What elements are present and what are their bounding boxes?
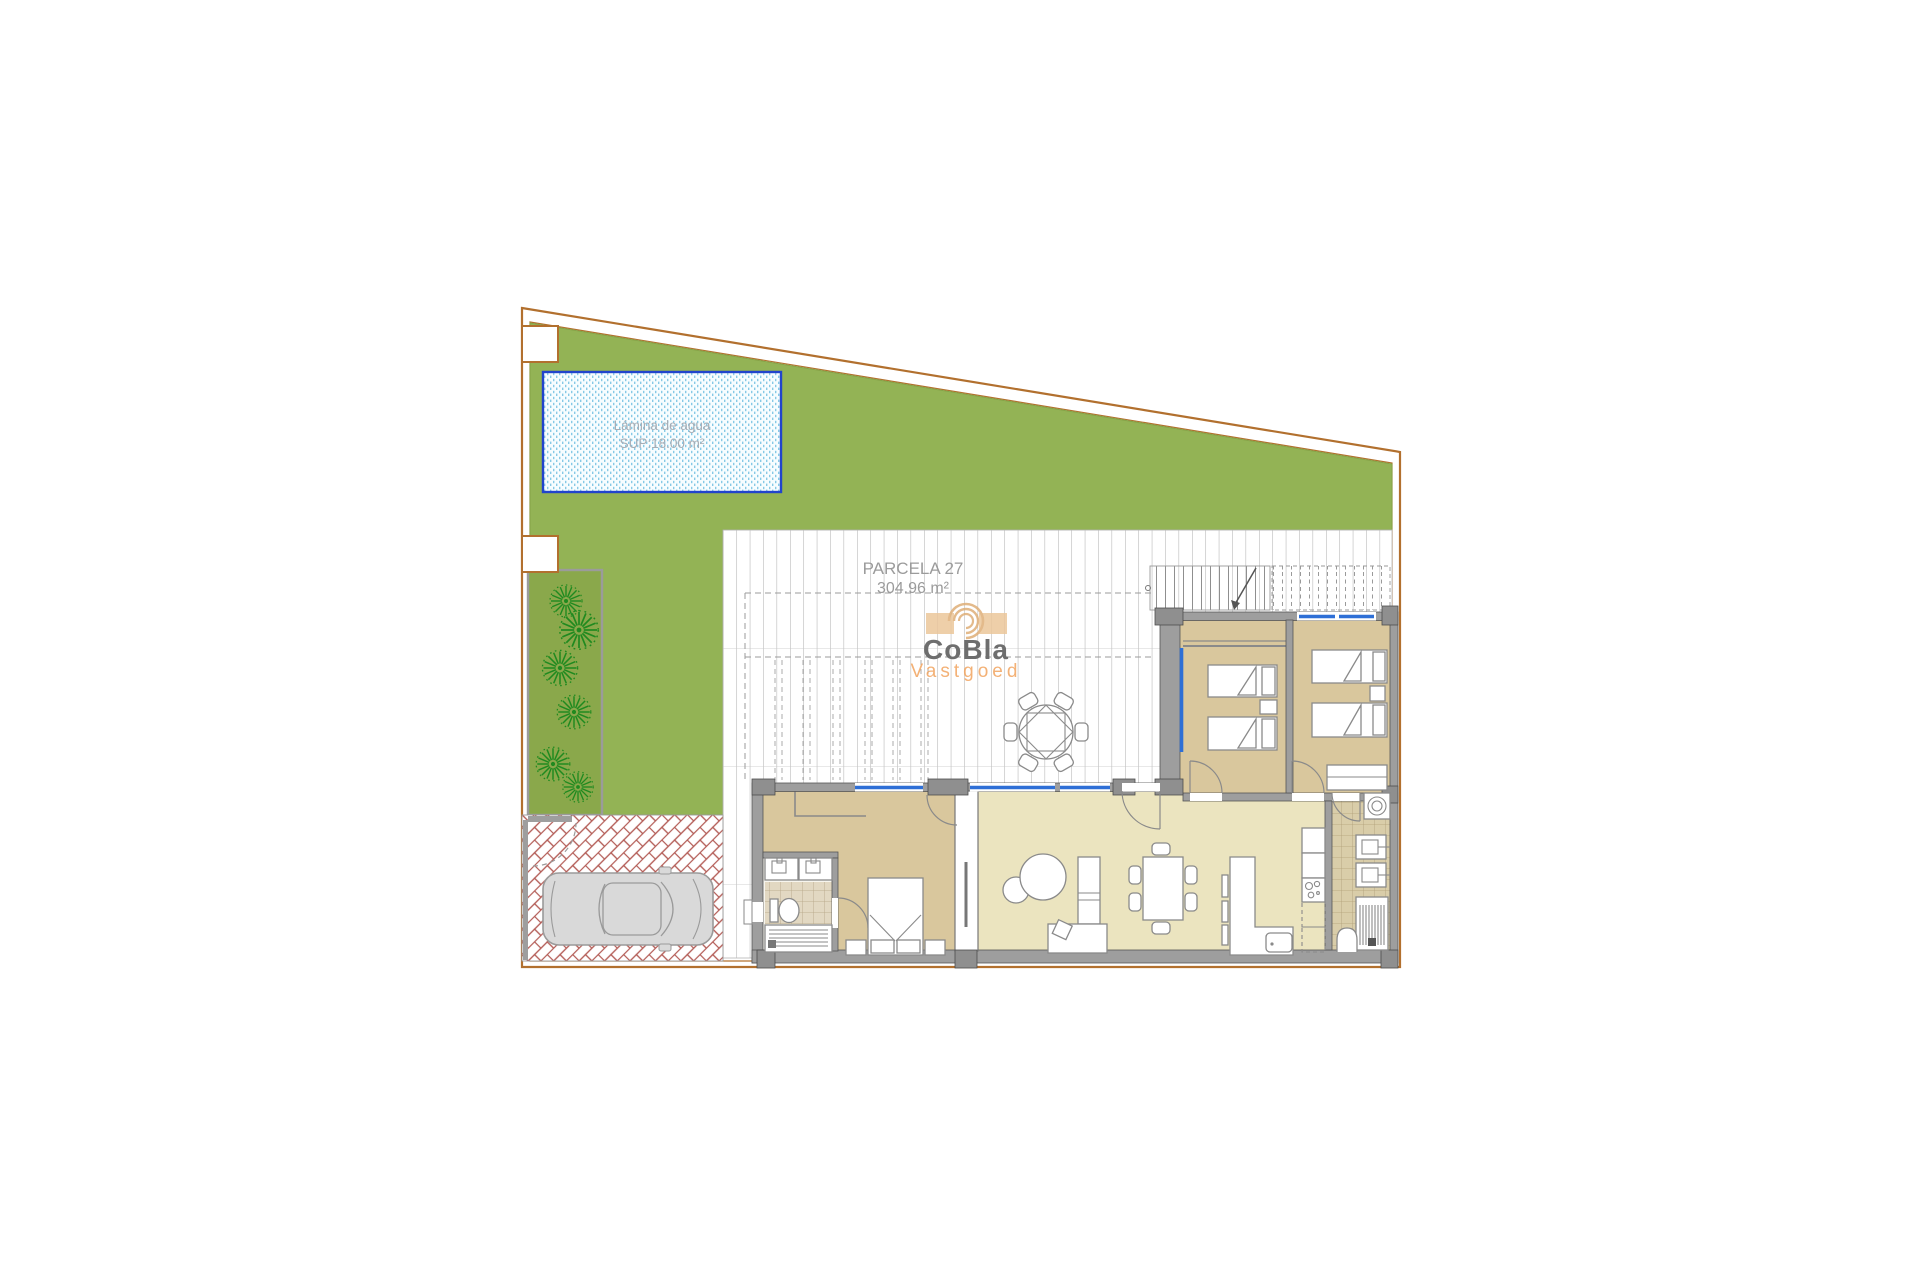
- chair: [1185, 866, 1197, 884]
- site-plan: Lámina de agua SUP:18.00 m² PARCELA 27 3…: [0, 0, 1920, 1280]
- side-mirror: [659, 867, 671, 874]
- chair: [1129, 893, 1141, 911]
- nightstand: [1370, 686, 1385, 701]
- wardrobe: [1327, 765, 1387, 790]
- pillow: [1373, 652, 1385, 681]
- dining-table: [1143, 857, 1183, 920]
- washing-machine: [1356, 897, 1388, 950]
- floor-plan-page: Lámina de agua SUP:18.00 m² PARCELA 27 3…: [0, 0, 1920, 1280]
- side-mirror: [659, 944, 671, 951]
- boundary-wall: [523, 820, 528, 960]
- logo-subtitle: Vastgoed: [911, 661, 1022, 682]
- external-staircase: [1146, 566, 1391, 610]
- shower: [765, 925, 832, 952]
- toilet: [1337, 928, 1357, 952]
- utility-meter-box: [522, 536, 558, 572]
- kitchen-sink: [1266, 933, 1292, 952]
- pillow: [1262, 667, 1275, 695]
- toilet: [770, 899, 799, 923]
- nightstand: [1260, 700, 1277, 714]
- pillow: [1262, 719, 1275, 748]
- utility-meter-box: [522, 326, 558, 362]
- chair: [1129, 866, 1141, 884]
- chair: [1185, 893, 1197, 911]
- hob: [1302, 878, 1325, 902]
- gate-wall-stub: [528, 816, 572, 822]
- pool-label: Lámina de agua: [614, 418, 711, 433]
- parcel-label: PARCELA 27: [863, 559, 964, 578]
- swimming-pool: Lámina de agua SUP:18.00 m²: [543, 372, 781, 492]
- nightstand: [925, 940, 945, 955]
- car: [543, 867, 713, 951]
- pillow: [871, 940, 894, 953]
- chair: [1152, 843, 1170, 855]
- pillow: [897, 940, 920, 953]
- fridge: [1302, 828, 1325, 853]
- shelf-unit: [1078, 857, 1100, 924]
- parcel-area-label: 304.96 m²: [877, 580, 950, 597]
- round-table: [1020, 854, 1066, 900]
- pool-area-label: SUP:18.00 m²: [620, 436, 705, 451]
- chair: [1152, 922, 1170, 934]
- garden-strip: [528, 570, 603, 815]
- pillow: [1373, 705, 1385, 735]
- oven: [1302, 853, 1325, 878]
- nightstand: [846, 940, 866, 955]
